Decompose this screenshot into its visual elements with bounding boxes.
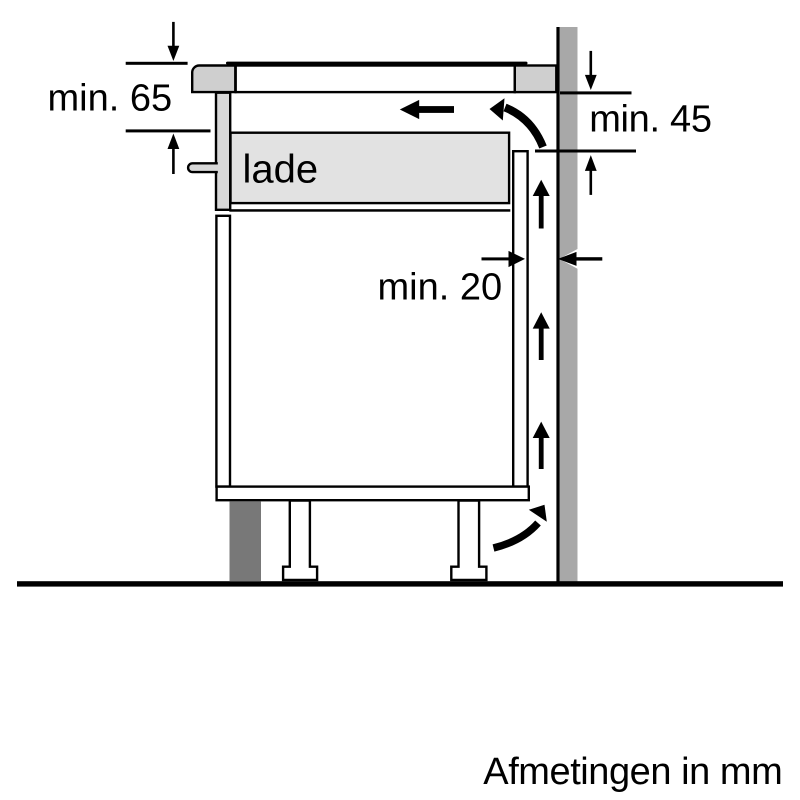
svg-text:min. 65: min. 65 (48, 78, 173, 120)
svg-text:lade: lade (243, 148, 319, 192)
svg-text:min. 20: min. 20 (378, 267, 503, 309)
svg-text:min. 45: min. 45 (589, 99, 712, 141)
svg-text:Afmetingen in mm: Afmetingen in mm (483, 751, 782, 793)
